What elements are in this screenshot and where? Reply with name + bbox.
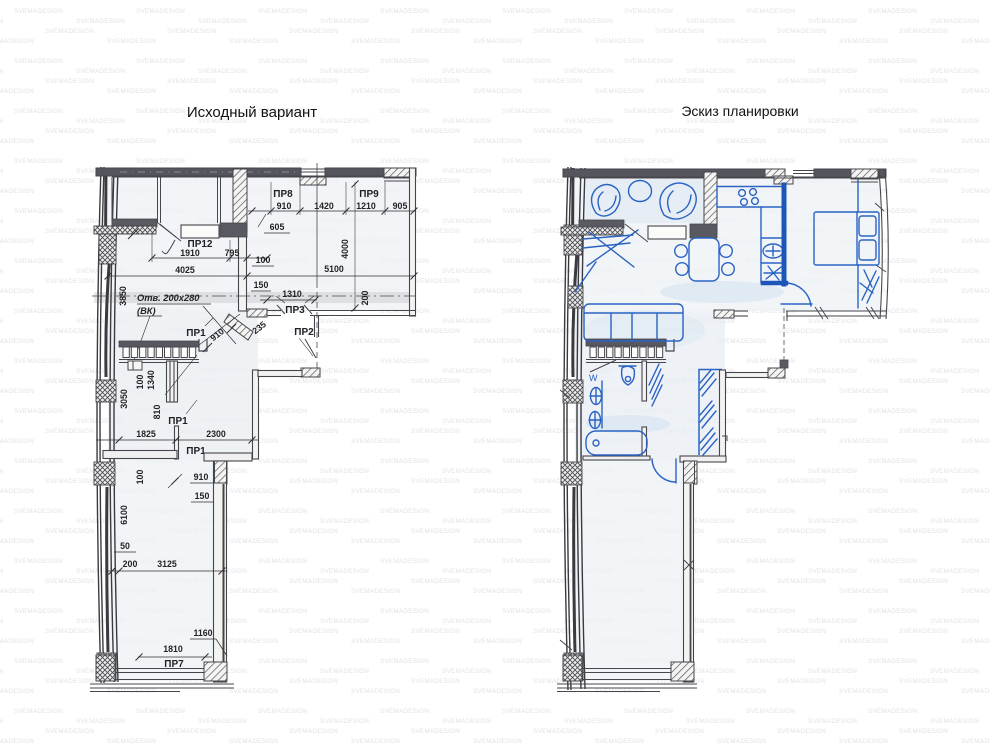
svg-text:SVEMADESIGN: SVEMADESIGN	[899, 78, 948, 85]
svg-text:SVEMADESIGN: SVEMADESIGN	[502, 208, 551, 215]
svg-text:6100: 6100	[119, 505, 129, 525]
svg-text:SVEMADESIGN: SVEMADESIGN	[320, 18, 369, 25]
svg-text:SVEMADESIGN: SVEMADESIGN	[717, 38, 766, 45]
svg-text:SVEMADESIGN: SVEMADESIGN	[961, 138, 990, 145]
svg-text:SVEMADESIGN: SVEMADESIGN	[0, 418, 3, 425]
svg-text:810: 810	[152, 405, 162, 420]
svg-text:SVEMADESIGN: SVEMADESIGN	[76, 118, 125, 125]
svg-text:SVEMADESIGN: SVEMADESIGN	[961, 538, 990, 545]
svg-text:SVEMADESIGN: SVEMADESIGN	[351, 738, 400, 745]
svg-text:SVEMADESIGN: SVEMADESIGN	[136, 8, 185, 15]
svg-text:SVEMADESIGN: SVEMADESIGN	[167, 728, 216, 735]
svg-text:SVEMADESIGN: SVEMADESIGN	[624, 8, 673, 15]
svg-text:SVEMADESIGN: SVEMADESIGN	[258, 8, 307, 15]
svg-text:SVEMADESIGN: SVEMADESIGN	[868, 358, 917, 365]
svg-text:SVEMADESIGN: SVEMADESIGN	[0, 338, 34, 345]
svg-text:1210: 1210	[356, 201, 376, 211]
svg-text:1310: 1310	[282, 289, 302, 299]
svg-text:SVEMADESIGN: SVEMADESIGN	[351, 638, 400, 645]
svg-text:SVEMADESIGN: SVEMADESIGN	[808, 368, 857, 375]
svg-text:SVEMADESIGN: SVEMADESIGN	[961, 738, 990, 745]
svg-text:SVEMADESIGN: SVEMADESIGN	[198, 18, 247, 25]
svg-text:SVEMADESIGN: SVEMADESIGN	[533, 28, 582, 35]
svg-text:SVEMADESIGN: SVEMADESIGN	[839, 388, 888, 395]
svg-text:SVEMADESIGN: SVEMADESIGN	[351, 438, 400, 445]
svg-text:SVEMADESIGN: SVEMADESIGN	[380, 8, 429, 15]
svg-text:1340: 1340	[146, 370, 156, 390]
svg-text:1160: 1160	[193, 628, 212, 638]
svg-text:SVEMADESIGN: SVEMADESIGN	[502, 308, 551, 315]
svg-text:SVEMADESIGN: SVEMADESIGN	[899, 128, 948, 135]
svg-text:SVEMADESIGN: SVEMADESIGN	[0, 368, 3, 375]
svg-text:SVEMADESIGN: SVEMADESIGN	[717, 688, 766, 695]
svg-text:SVEMADESIGN: SVEMADESIGN	[380, 558, 429, 565]
svg-text:SVEMADESIGN: SVEMADESIGN	[930, 568, 979, 575]
svg-text:SVEMADESIGN: SVEMADESIGN	[411, 328, 460, 335]
svg-text:SVEMADESIGN: SVEMADESIGN	[411, 478, 460, 485]
svg-text:SVEMADESIGN: SVEMADESIGN	[351, 588, 400, 595]
svg-text:SVEMADESIGN: SVEMADESIGN	[136, 108, 185, 115]
svg-text:SVEMADESIGN: SVEMADESIGN	[746, 558, 795, 565]
svg-text:SVEMADESIGN: SVEMADESIGN	[746, 608, 795, 615]
svg-text:SVEMADESIGN: SVEMADESIGN	[289, 478, 338, 485]
svg-text:SVEMADESIGN: SVEMADESIGN	[808, 668, 857, 675]
svg-text:SVEMADESIGN: SVEMADESIGN	[45, 228, 94, 235]
svg-text:SVEMADESIGN: SVEMADESIGN	[0, 288, 34, 295]
svg-text:SVEMADESIGN: SVEMADESIGN	[473, 88, 522, 95]
svg-text:SVEMADESIGN: SVEMADESIGN	[167, 128, 216, 135]
svg-text:SVEMADESIGN: SVEMADESIGN	[380, 658, 429, 665]
svg-text:SVEMADESIGN: SVEMADESIGN	[808, 318, 857, 325]
svg-text:SVEMADESIGN: SVEMADESIGN	[442, 18, 491, 25]
svg-text:SVEMADESIGN: SVEMADESIGN	[107, 38, 156, 45]
svg-text:SVEMADESIGN: SVEMADESIGN	[0, 618, 3, 625]
svg-text:SVEMADESIGN: SVEMADESIGN	[502, 558, 551, 565]
svg-text:SVEMADESIGN: SVEMADESIGN	[624, 108, 673, 115]
svg-text:SVEMADESIGN: SVEMADESIGN	[777, 628, 826, 635]
svg-text:SVEMADESIGN: SVEMADESIGN	[0, 318, 3, 325]
svg-text:SVEMADESIGN: SVEMADESIGN	[45, 528, 94, 535]
svg-text:1810: 1810	[163, 644, 183, 654]
svg-text:SVEMADESIGN: SVEMADESIGN	[839, 488, 888, 495]
svg-text:SVEMADESIGN: SVEMADESIGN	[0, 538, 34, 545]
svg-text:SVEMADESIGN: SVEMADESIGN	[442, 718, 491, 725]
svg-text:Отв. 200х280: Отв. 200х280	[137, 293, 200, 303]
svg-text:SVEMADESIGN: SVEMADESIGN	[351, 38, 400, 45]
svg-text:SVEMADESIGN: SVEMADESIGN	[686, 68, 735, 75]
svg-text:SVEMADESIGN: SVEMADESIGN	[564, 68, 613, 75]
svg-text:SVEMADESIGN: SVEMADESIGN	[655, 128, 704, 135]
svg-text:SVEMADESIGN: SVEMADESIGN	[868, 558, 917, 565]
svg-text:SVEMADESIGN: SVEMADESIGN	[717, 138, 766, 145]
svg-text:ПР9: ПР9	[359, 189, 379, 200]
svg-text:SVEMADESIGN: SVEMADESIGN	[258, 558, 307, 565]
svg-text:SVEMADESIGN: SVEMADESIGN	[380, 358, 429, 365]
svg-text:SVEMADESIGN: SVEMADESIGN	[777, 678, 826, 685]
svg-text:SVEMADESIGN: SVEMADESIGN	[198, 68, 247, 75]
svg-text:SVEMADESIGN: SVEMADESIGN	[14, 458, 63, 465]
svg-text:SVEMADESIGN: SVEMADESIGN	[502, 658, 551, 665]
svg-text:SVEMADESIGN: SVEMADESIGN	[229, 38, 278, 45]
svg-text:SVEMADESIGN: SVEMADESIGN	[961, 238, 990, 245]
svg-text:SVEMADESIGN: SVEMADESIGN	[502, 608, 551, 615]
svg-text:SVEMADESIGN: SVEMADESIGN	[0, 488, 34, 495]
svg-text:SVEMADESIGN: SVEMADESIGN	[442, 68, 491, 75]
svg-text:SVEMADESIGN: SVEMADESIGN	[746, 658, 795, 665]
svg-text:SVEMADESIGN: SVEMADESIGN	[473, 438, 522, 445]
svg-text:SVEMADESIGN: SVEMADESIGN	[136, 708, 185, 715]
svg-text:SVEMADESIGN: SVEMADESIGN	[564, 18, 613, 25]
svg-text:SVEMADESIGN: SVEMADESIGN	[258, 658, 307, 665]
svg-text:SVEMADESIGN: SVEMADESIGN	[229, 588, 278, 595]
svg-text:SVEMADESIGN: SVEMADESIGN	[14, 258, 63, 265]
svg-text:SVEMADESIGN: SVEMADESIGN	[351, 688, 400, 695]
svg-text:SVEMADESIGN: SVEMADESIGN	[746, 58, 795, 65]
svg-text:SVEMADESIGN: SVEMADESIGN	[0, 168, 3, 175]
svg-text:SVEMADESIGN: SVEMADESIGN	[777, 378, 826, 385]
svg-text:SVEMADESIGN: SVEMADESIGN	[320, 418, 369, 425]
svg-text:SVEMADESIGN: SVEMADESIGN	[961, 688, 990, 695]
svg-text:100: 100	[135, 470, 145, 485]
svg-text:SVEMADESIGN: SVEMADESIGN	[839, 638, 888, 645]
svg-text:SVEMADESIGN: SVEMADESIGN	[0, 388, 34, 395]
svg-text:SVEMADESIGN: SVEMADESIGN	[411, 528, 460, 535]
svg-text:SVEMADESIGN: SVEMADESIGN	[411, 228, 460, 235]
svg-text:SVEMADESIGN: SVEMADESIGN	[930, 318, 979, 325]
svg-text:SVEMADESIGN: SVEMADESIGN	[258, 358, 307, 365]
svg-text:1825: 1825	[136, 429, 156, 439]
svg-text:SVEMADESIGN: SVEMADESIGN	[473, 38, 522, 45]
svg-text:SVEMADESIGN: SVEMADESIGN	[0, 238, 34, 245]
svg-text:SVEMADESIGN: SVEMADESIGN	[473, 688, 522, 695]
svg-text:SVEMADESIGN: SVEMADESIGN	[808, 718, 857, 725]
svg-text:ПР2: ПР2	[294, 327, 314, 338]
svg-text:SVEMADESIGN: SVEMADESIGN	[0, 738, 34, 745]
svg-text:SVEMADESIGN: SVEMADESIGN	[289, 428, 338, 435]
svg-text:SVEMADESIGN: SVEMADESIGN	[45, 178, 94, 185]
svg-text:W: W	[589, 373, 598, 383]
svg-text:SVEMADESIGN: SVEMADESIGN	[473, 288, 522, 295]
svg-text:SVEMADESIGN: SVEMADESIGN	[442, 168, 491, 175]
svg-text:SVEMADESIGN: SVEMADESIGN	[502, 158, 551, 165]
svg-text:SVEMADESIGN: SVEMADESIGN	[473, 338, 522, 345]
svg-text:SVEMADESIGN: SVEMADESIGN	[533, 78, 582, 85]
svg-text:SVEMADESIGN: SVEMADESIGN	[380, 608, 429, 615]
svg-text:SVEMADESIGN: SVEMADESIGN	[45, 428, 94, 435]
svg-text:SVEMADESIGN: SVEMADESIGN	[45, 628, 94, 635]
svg-text:SVEMADESIGN: SVEMADESIGN	[624, 58, 673, 65]
svg-text:SVEMADESIGN: SVEMADESIGN	[868, 108, 917, 115]
svg-text:SVEMADESIGN: SVEMADESIGN	[502, 508, 551, 515]
svg-text:SVEMADESIGN: SVEMADESIGN	[502, 58, 551, 65]
svg-text:SVEMADESIGN: SVEMADESIGN	[502, 358, 551, 365]
svg-text:SVEMADESIGN: SVEMADESIGN	[107, 138, 156, 145]
svg-text:SVEMADESIGN: SVEMADESIGN	[777, 528, 826, 535]
svg-text:SVEMADESIGN: SVEMADESIGN	[930, 518, 979, 525]
svg-text:SVEMADESIGN: SVEMADESIGN	[839, 88, 888, 95]
svg-text:SVEMADESIGN: SVEMADESIGN	[14, 508, 63, 515]
svg-text:SVEMADESIGN: SVEMADESIGN	[746, 408, 795, 415]
svg-text:SVEMADESIGN: SVEMADESIGN	[107, 738, 156, 745]
svg-text:SVEMADESIGN: SVEMADESIGN	[14, 208, 63, 215]
svg-text:SVEMADESIGN: SVEMADESIGN	[717, 88, 766, 95]
svg-text:3050: 3050	[119, 389, 129, 409]
svg-text:SVEMADESIGN: SVEMADESIGN	[746, 508, 795, 515]
svg-text:SVEMADESIGN: SVEMADESIGN	[808, 68, 857, 75]
svg-text:SVEMADESIGN: SVEMADESIGN	[14, 408, 63, 415]
svg-text:SVEMADESIGN: SVEMADESIGN	[502, 108, 551, 115]
svg-text:SVEMADESIGN: SVEMADESIGN	[655, 28, 704, 35]
svg-text:SVEMADESIGN: SVEMADESIGN	[899, 478, 948, 485]
svg-text:SVEMADESIGN: SVEMADESIGN	[961, 188, 990, 195]
svg-text:SVEMADESIGN: SVEMADESIGN	[442, 618, 491, 625]
svg-text:SVEMADESIGN: SVEMADESIGN	[442, 268, 491, 275]
svg-text:SVEMADESIGN: SVEMADESIGN	[839, 688, 888, 695]
svg-text:SVEMADESIGN: SVEMADESIGN	[380, 508, 429, 515]
svg-text:SVEMADESIGN: SVEMADESIGN	[45, 478, 94, 485]
svg-text:SVEMADESIGN: SVEMADESIGN	[45, 728, 94, 735]
svg-text:SVEMADESIGN: SVEMADESIGN	[258, 158, 307, 165]
svg-text:5100: 5100	[324, 264, 344, 274]
svg-text:SVEMADESIGN: SVEMADESIGN	[868, 58, 917, 65]
svg-text:SVEMADESIGN: SVEMADESIGN	[258, 58, 307, 65]
svg-text:SVEMADESIGN: SVEMADESIGN	[289, 628, 338, 635]
svg-text:SVEMADESIGN: SVEMADESIGN	[473, 238, 522, 245]
svg-text:SVEMADESIGN: SVEMADESIGN	[289, 28, 338, 35]
svg-text:SVEMADESIGN: SVEMADESIGN	[411, 728, 460, 735]
svg-text:SVEMADESIGN: SVEMADESIGN	[595, 38, 644, 45]
svg-text:SVEMADESIGN: SVEMADESIGN	[717, 488, 766, 495]
svg-text:Эскиз планировки: Эскиз планировки	[681, 103, 798, 119]
svg-text:SVEMADESIGN: SVEMADESIGN	[0, 268, 3, 275]
svg-text:SVEMADESIGN: SVEMADESIGN	[808, 418, 857, 425]
svg-text:SVEMADESIGN: SVEMADESIGN	[777, 728, 826, 735]
svg-text:SVEMADESIGN: SVEMADESIGN	[0, 138, 34, 145]
svg-text:SVEMADESIGN: SVEMADESIGN	[930, 168, 979, 175]
svg-text:100: 100	[256, 255, 271, 265]
svg-text:SVEMADESIGN: SVEMADESIGN	[868, 8, 917, 15]
svg-text:SVEMADESIGN: SVEMADESIGN	[0, 18, 3, 25]
svg-text:SVEMADESIGN: SVEMADESIGN	[961, 338, 990, 345]
svg-text:SVEMADESIGN: SVEMADESIGN	[411, 428, 460, 435]
svg-text:SVEMADESIGN: SVEMADESIGN	[868, 408, 917, 415]
svg-text:SVEMADESIGN: SVEMADESIGN	[839, 438, 888, 445]
svg-text:SVEMADESIGN: SVEMADESIGN	[0, 468, 3, 475]
svg-text:SVEMADESIGN: SVEMADESIGN	[14, 608, 63, 615]
svg-text:SVEMADESIGN: SVEMADESIGN	[0, 88, 34, 95]
svg-text:SVEMADESIGN: SVEMADESIGN	[351, 138, 400, 145]
svg-text:SVEMADESIGN: SVEMADESIGN	[289, 578, 338, 585]
svg-text:SVEMADESIGN: SVEMADESIGN	[961, 438, 990, 445]
svg-text:SVEMADESIGN: SVEMADESIGN	[899, 428, 948, 435]
svg-text:SVEMADESIGN: SVEMADESIGN	[961, 288, 990, 295]
svg-text:SVEMADESIGN: SVEMADESIGN	[0, 438, 34, 445]
svg-text:SVEMADESIGN: SVEMADESIGN	[899, 528, 948, 535]
svg-text:ПР12: ПР12	[188, 239, 213, 250]
svg-text:SVEMADESIGN: SVEMADESIGN	[808, 18, 857, 25]
svg-text:SVEMADESIGN: SVEMADESIGN	[45, 328, 94, 335]
svg-text:SVEMADESIGN: SVEMADESIGN	[930, 668, 979, 675]
svg-text:SVEMADESIGN: SVEMADESIGN	[411, 178, 460, 185]
svg-text:SVEMADESIGN: SVEMADESIGN	[351, 538, 400, 545]
svg-text:SVEMADESIGN: SVEMADESIGN	[380, 458, 429, 465]
svg-text:SVEMADESIGN: SVEMADESIGN	[533, 178, 582, 185]
svg-text:150: 150	[195, 491, 210, 501]
svg-text:SVEMADESIGN: SVEMADESIGN	[868, 608, 917, 615]
svg-text:SVEMADESIGN: SVEMADESIGN	[899, 578, 948, 585]
svg-text:2300: 2300	[206, 429, 226, 439]
svg-text:SVEMADESIGN: SVEMADESIGN	[899, 378, 948, 385]
svg-text:SVEMADESIGN: SVEMADESIGN	[717, 538, 766, 545]
svg-text:SVEMADESIGN: SVEMADESIGN	[14, 8, 63, 15]
svg-text:SVEMADESIGN: SVEMADESIGN	[320, 68, 369, 75]
svg-text:SVEMADESIGN: SVEMADESIGN	[107, 88, 156, 95]
svg-text:SVEMADESIGN: SVEMADESIGN	[777, 478, 826, 485]
svg-text:Исходный вариант: Исходный вариант	[187, 104, 317, 121]
svg-text:SVEMADESIGN: SVEMADESIGN	[777, 28, 826, 35]
svg-text:SVEMADESIGN: SVEMADESIGN	[961, 638, 990, 645]
svg-text:SVEMADESIGN: SVEMADESIGN	[899, 228, 948, 235]
svg-text:605: 605	[270, 222, 285, 232]
svg-text:SVEMADESIGN: SVEMADESIGN	[289, 128, 338, 135]
svg-text:SVEMADESIGN: SVEMADESIGN	[442, 518, 491, 525]
svg-text:SVEMADESIGN: SVEMADESIGN	[136, 158, 185, 165]
svg-text:ПР1: ПР1	[186, 328, 206, 339]
svg-text:SVEMADESIGN: SVEMADESIGN	[868, 458, 917, 465]
svg-text:SVEMADESIGN: SVEMADESIGN	[229, 88, 278, 95]
svg-text:SVEMADESIGN: SVEMADESIGN	[746, 158, 795, 165]
svg-text:SVEMADESIGN: SVEMADESIGN	[258, 608, 307, 615]
svg-text:SVEMADESIGN: SVEMADESIGN	[961, 488, 990, 495]
svg-text:SVEMADESIGN: SVEMADESIGN	[351, 488, 400, 495]
svg-text:SVEMADESIGN: SVEMADESIGN	[533, 128, 582, 135]
svg-text:SVEMADESIGN: SVEMADESIGN	[868, 158, 917, 165]
svg-text:SVEMADESIGN: SVEMADESIGN	[229, 738, 278, 745]
svg-text:SVEMADESIGN: SVEMADESIGN	[380, 58, 429, 65]
svg-text:SVEMADESIGN: SVEMADESIGN	[961, 38, 990, 45]
svg-text:SVEMADESIGN: SVEMADESIGN	[899, 178, 948, 185]
svg-text:SVEMADESIGN: SVEMADESIGN	[320, 668, 369, 675]
svg-text:SVEMADESIGN: SVEMADESIGN	[655, 728, 704, 735]
svg-text:SVEMADESIGN: SVEMADESIGN	[0, 568, 3, 575]
svg-text:SVEMADESIGN: SVEMADESIGN	[45, 378, 94, 385]
svg-text:SVEMADESIGN: SVEMADESIGN	[839, 538, 888, 545]
svg-text:SVEMADESIGN: SVEMADESIGN	[899, 678, 948, 685]
svg-text:SVEMADESIGN: SVEMADESIGN	[473, 638, 522, 645]
svg-text:SVEMADESIGN: SVEMADESIGN	[76, 68, 125, 75]
svg-text:SVEMADESIGN: SVEMADESIGN	[229, 538, 278, 545]
svg-text:SVEMADESIGN: SVEMADESIGN	[167, 78, 216, 85]
svg-text:SVEMADESIGN: SVEMADESIGN	[0, 118, 3, 125]
svg-text:SVEMADESIGN: SVEMADESIGN	[0, 38, 34, 45]
svg-text:SVEMADESIGN: SVEMADESIGN	[0, 668, 3, 675]
svg-text:SVEMADESIGN: SVEMADESIGN	[442, 418, 491, 425]
svg-text:SVEMADESIGN: SVEMADESIGN	[686, 118, 735, 125]
svg-text:SVEMADESIGN: SVEMADESIGN	[930, 368, 979, 375]
svg-text:SVEMADESIGN: SVEMADESIGN	[502, 458, 551, 465]
svg-text:SVEMADESIGN: SVEMADESIGN	[839, 38, 888, 45]
svg-text:SVEMADESIGN: SVEMADESIGN	[0, 218, 3, 225]
svg-text:SVEMADESIGN: SVEMADESIGN	[717, 638, 766, 645]
svg-text:ПР8: ПР8	[273, 189, 293, 200]
svg-text:SVEMADESIGN: SVEMADESIGN	[595, 738, 644, 745]
svg-text:SVEMADESIGN: SVEMADESIGN	[839, 738, 888, 745]
svg-text:SVEMADESIGN: SVEMADESIGN	[595, 88, 644, 95]
svg-text:SVEMADESIGN: SVEMADESIGN	[686, 718, 735, 725]
svg-text:SVEMADESIGN: SVEMADESIGN	[961, 588, 990, 595]
svg-text:SVEMADESIGN: SVEMADESIGN	[442, 218, 491, 225]
svg-text:SVEMADESIGN: SVEMADESIGN	[45, 578, 94, 585]
svg-text:SVEMADESIGN: SVEMADESIGN	[198, 718, 247, 725]
svg-text:SVEMADESIGN: SVEMADESIGN	[899, 28, 948, 35]
svg-text:SVEMADESIGN: SVEMADESIGN	[442, 318, 491, 325]
svg-text:SVEMADESIGN: SVEMADESIGN	[930, 718, 979, 725]
svg-text:SVEMADESIGN: SVEMADESIGN	[411, 578, 460, 585]
svg-text:SVEMADESIGN: SVEMADESIGN	[14, 358, 63, 365]
svg-text:SVEMADESIGN: SVEMADESIGN	[76, 18, 125, 25]
svg-text:910: 910	[194, 472, 209, 482]
svg-text:SVEMADESIGN: SVEMADESIGN	[777, 128, 826, 135]
svg-text:ПР3: ПР3	[285, 305, 305, 316]
svg-text:SVEMADESIGN: SVEMADESIGN	[686, 18, 735, 25]
svg-text:SVEMADESIGN: SVEMADESIGN	[777, 428, 826, 435]
svg-text:SVEMADESIGN: SVEMADESIGN	[320, 468, 369, 475]
svg-text:SVEMADESIGN: SVEMADESIGN	[380, 408, 429, 415]
svg-text:SVEMADESIGN: SVEMADESIGN	[808, 568, 857, 575]
svg-text:SVEMADESIGN: SVEMADESIGN	[320, 568, 369, 575]
svg-text:SVEMADESIGN: SVEMADESIGN	[14, 108, 63, 115]
svg-text:SVEMADESIGN: SVEMADESIGN	[533, 428, 582, 435]
svg-text:SVEMADESIGN: SVEMADESIGN	[229, 638, 278, 645]
svg-text:905: 905	[393, 201, 408, 211]
svg-text:SVEMADESIGN: SVEMADESIGN	[289, 728, 338, 735]
svg-text:SVEMADESIGN: SVEMADESIGN	[45, 78, 94, 85]
svg-text:SVEMADESIGN: SVEMADESIGN	[0, 68, 3, 75]
svg-text:SVEMADESIGN: SVEMADESIGN	[45, 28, 94, 35]
svg-text:SVEMADESIGN: SVEMADESIGN	[930, 18, 979, 25]
svg-text:SVEMADESIGN: SVEMADESIGN	[442, 568, 491, 575]
svg-text:SVEMADESIGN: SVEMADESIGN	[411, 378, 460, 385]
svg-text:SVEMADESIGN: SVEMADESIGN	[961, 388, 990, 395]
svg-text:SVEMADESIGN: SVEMADESIGN	[930, 618, 979, 625]
svg-text:SVEMADESIGN: SVEMADESIGN	[351, 388, 400, 395]
svg-text:SVEMADESIGN: SVEMADESIGN	[624, 158, 673, 165]
svg-text:SVEMADESIGN: SVEMADESIGN	[229, 138, 278, 145]
svg-text:SVEMADESIGN: SVEMADESIGN	[930, 68, 979, 75]
svg-text:SVEMADESIGN: SVEMADESIGN	[564, 718, 613, 725]
svg-text:SVEMADESIGN: SVEMADESIGN	[0, 688, 34, 695]
svg-text:SVEMADESIGN: SVEMADESIGN	[899, 628, 948, 635]
svg-text:SVEMADESIGN: SVEMADESIGN	[839, 138, 888, 145]
svg-text:200: 200	[123, 559, 138, 569]
svg-text:SVEMADESIGN: SVEMADESIGN	[45, 278, 94, 285]
svg-text:SVEMADESIGN: SVEMADESIGN	[380, 158, 429, 165]
svg-text:SVEMADESIGN: SVEMADESIGN	[473, 138, 522, 145]
svg-text:SVEMADESIGN: SVEMADESIGN	[136, 58, 185, 65]
svg-text:SVEMADESIGN: SVEMADESIGN	[258, 508, 307, 515]
svg-text:150: 150	[254, 280, 269, 290]
svg-text:SVEMADESIGN: SVEMADESIGN	[0, 188, 34, 195]
svg-text:SVEMADESIGN: SVEMADESIGN	[808, 118, 857, 125]
svg-text:SVEMADESIGN: SVEMADESIGN	[258, 408, 307, 415]
svg-text:SVEMADESIGN: SVEMADESIGN	[746, 458, 795, 465]
svg-text:SVEMADESIGN: SVEMADESIGN	[746, 708, 795, 715]
svg-text:SVEMADESIGN: SVEMADESIGN	[746, 8, 795, 15]
svg-text:SVEMADESIGN: SVEMADESIGN	[289, 378, 338, 385]
svg-text:SVEMADESIGN: SVEMADESIGN	[289, 78, 338, 85]
svg-text:(ВК): (ВК)	[137, 306, 156, 316]
svg-text:SVEMADESIGN: SVEMADESIGN	[14, 708, 63, 715]
